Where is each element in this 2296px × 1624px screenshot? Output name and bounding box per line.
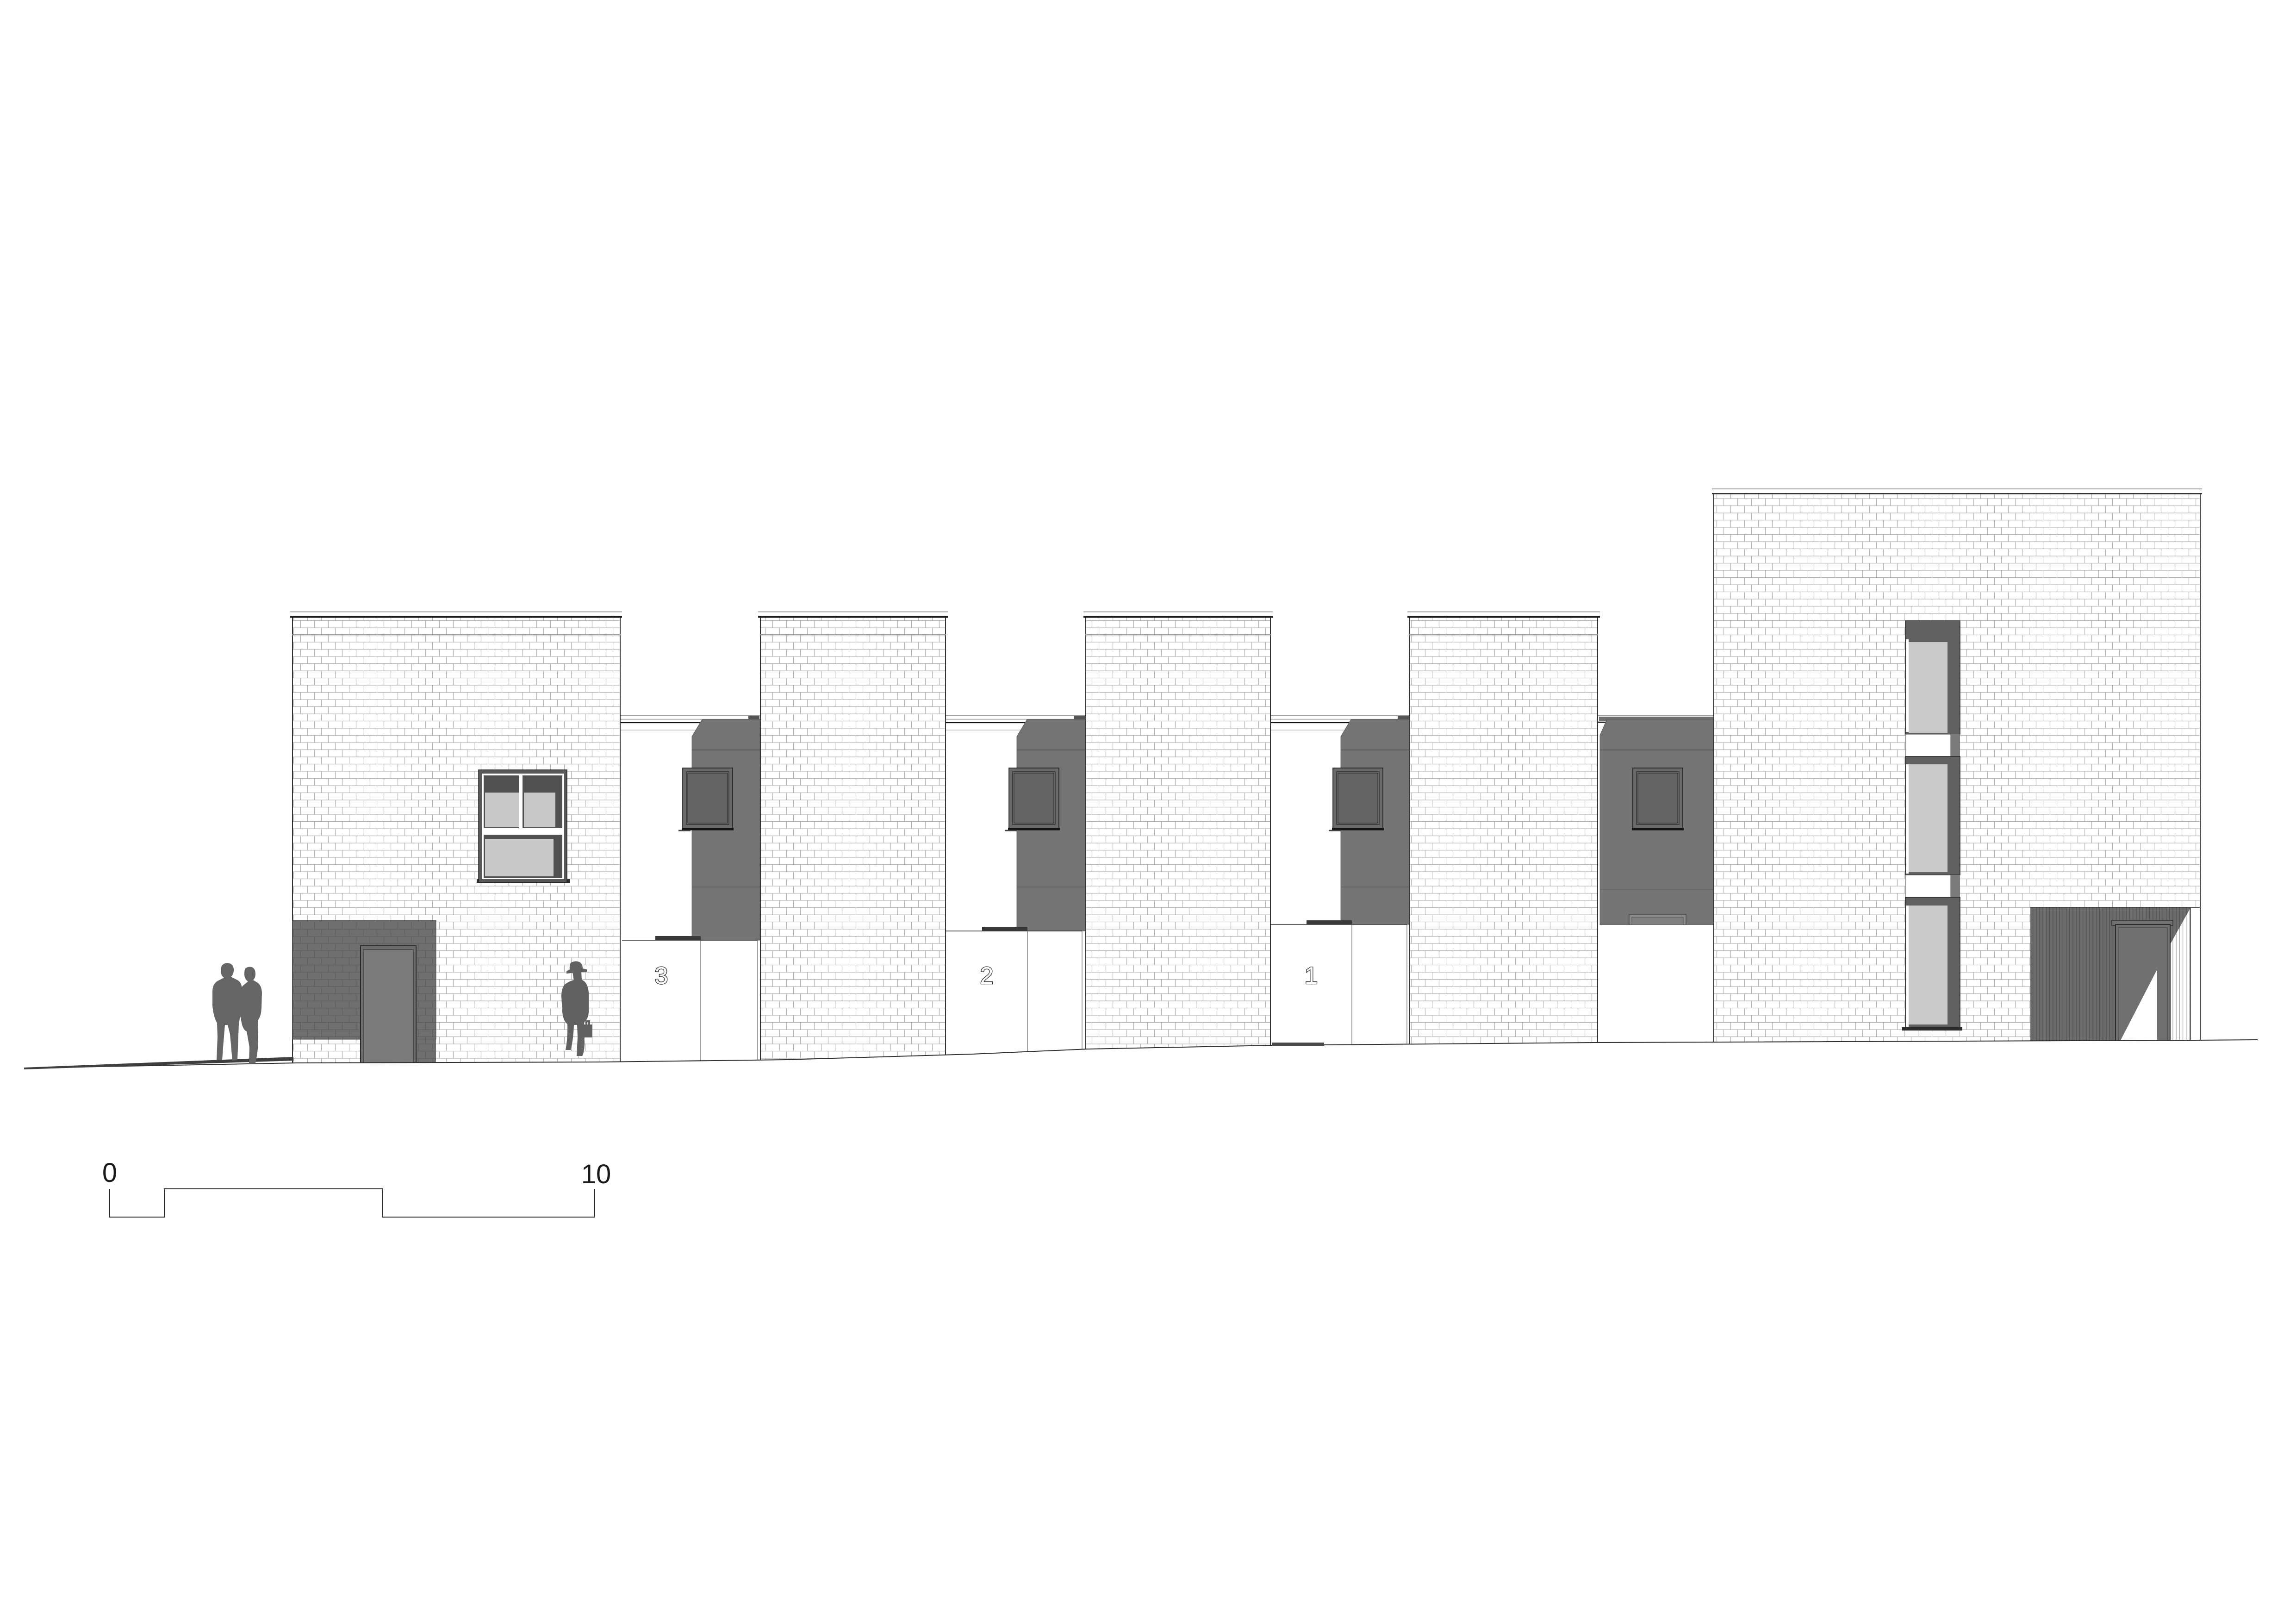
svg-text:2: 2	[980, 962, 994, 989]
svg-text:3: 3	[655, 962, 668, 989]
svg-text:10: 10	[581, 1159, 611, 1189]
svg-text:1: 1	[1305, 962, 1318, 989]
svg-text:0: 0	[102, 1158, 117, 1188]
